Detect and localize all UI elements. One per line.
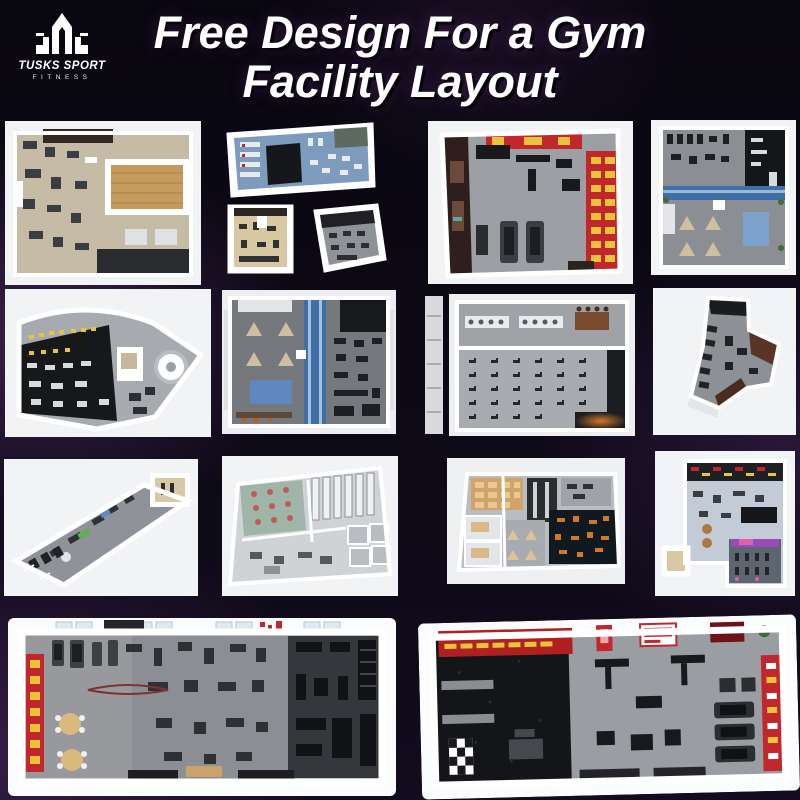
angular-dark-gym-plan: [653, 288, 796, 435]
tan-floor-small-gym-plan: [227, 204, 294, 274]
tusks-logo-icon: [29, 8, 95, 58]
blue-floor-club-plan: [655, 451, 795, 596]
blue-floor-gym-plan-wide: [222, 120, 378, 200]
brand-subtitle: FITNESS: [12, 74, 112, 81]
brand-logo: TUSKS SPORT FITNESS: [12, 8, 112, 81]
blue-runway-studio-plan-2: [222, 290, 396, 434]
gray-floor-small-gym-plan: [303, 201, 389, 274]
long-corridor-gym-plan: [4, 459, 198, 596]
blue-runway-studio-plan: [651, 120, 796, 275]
title-line-1: Free Design For a Gym: [105, 10, 695, 55]
beige-floor-gym-plan: [5, 121, 201, 285]
large-black-and-gray-gym-plan: [418, 614, 800, 799]
poster: TUSKS SPORT FITNESS Free Design For a Gy…: [0, 0, 800, 800]
title-line-2: Facility Layout: [105, 59, 695, 104]
orange-accent-club-plan: [447, 458, 625, 584]
fan-shaped-black-floor-gym-plan: [5, 289, 211, 437]
spin-class-studio-plan: [425, 292, 635, 438]
red-banner-cardio-room-plan: [428, 121, 633, 284]
brand-name: TUSKS SPORT: [12, 60, 112, 72]
poster-title: Free Design For a Gym Facility Layout: [105, 10, 695, 104]
large-gray-carpet-gym-plan: [8, 618, 396, 796]
multi-room-facility-plan: [222, 456, 398, 596]
